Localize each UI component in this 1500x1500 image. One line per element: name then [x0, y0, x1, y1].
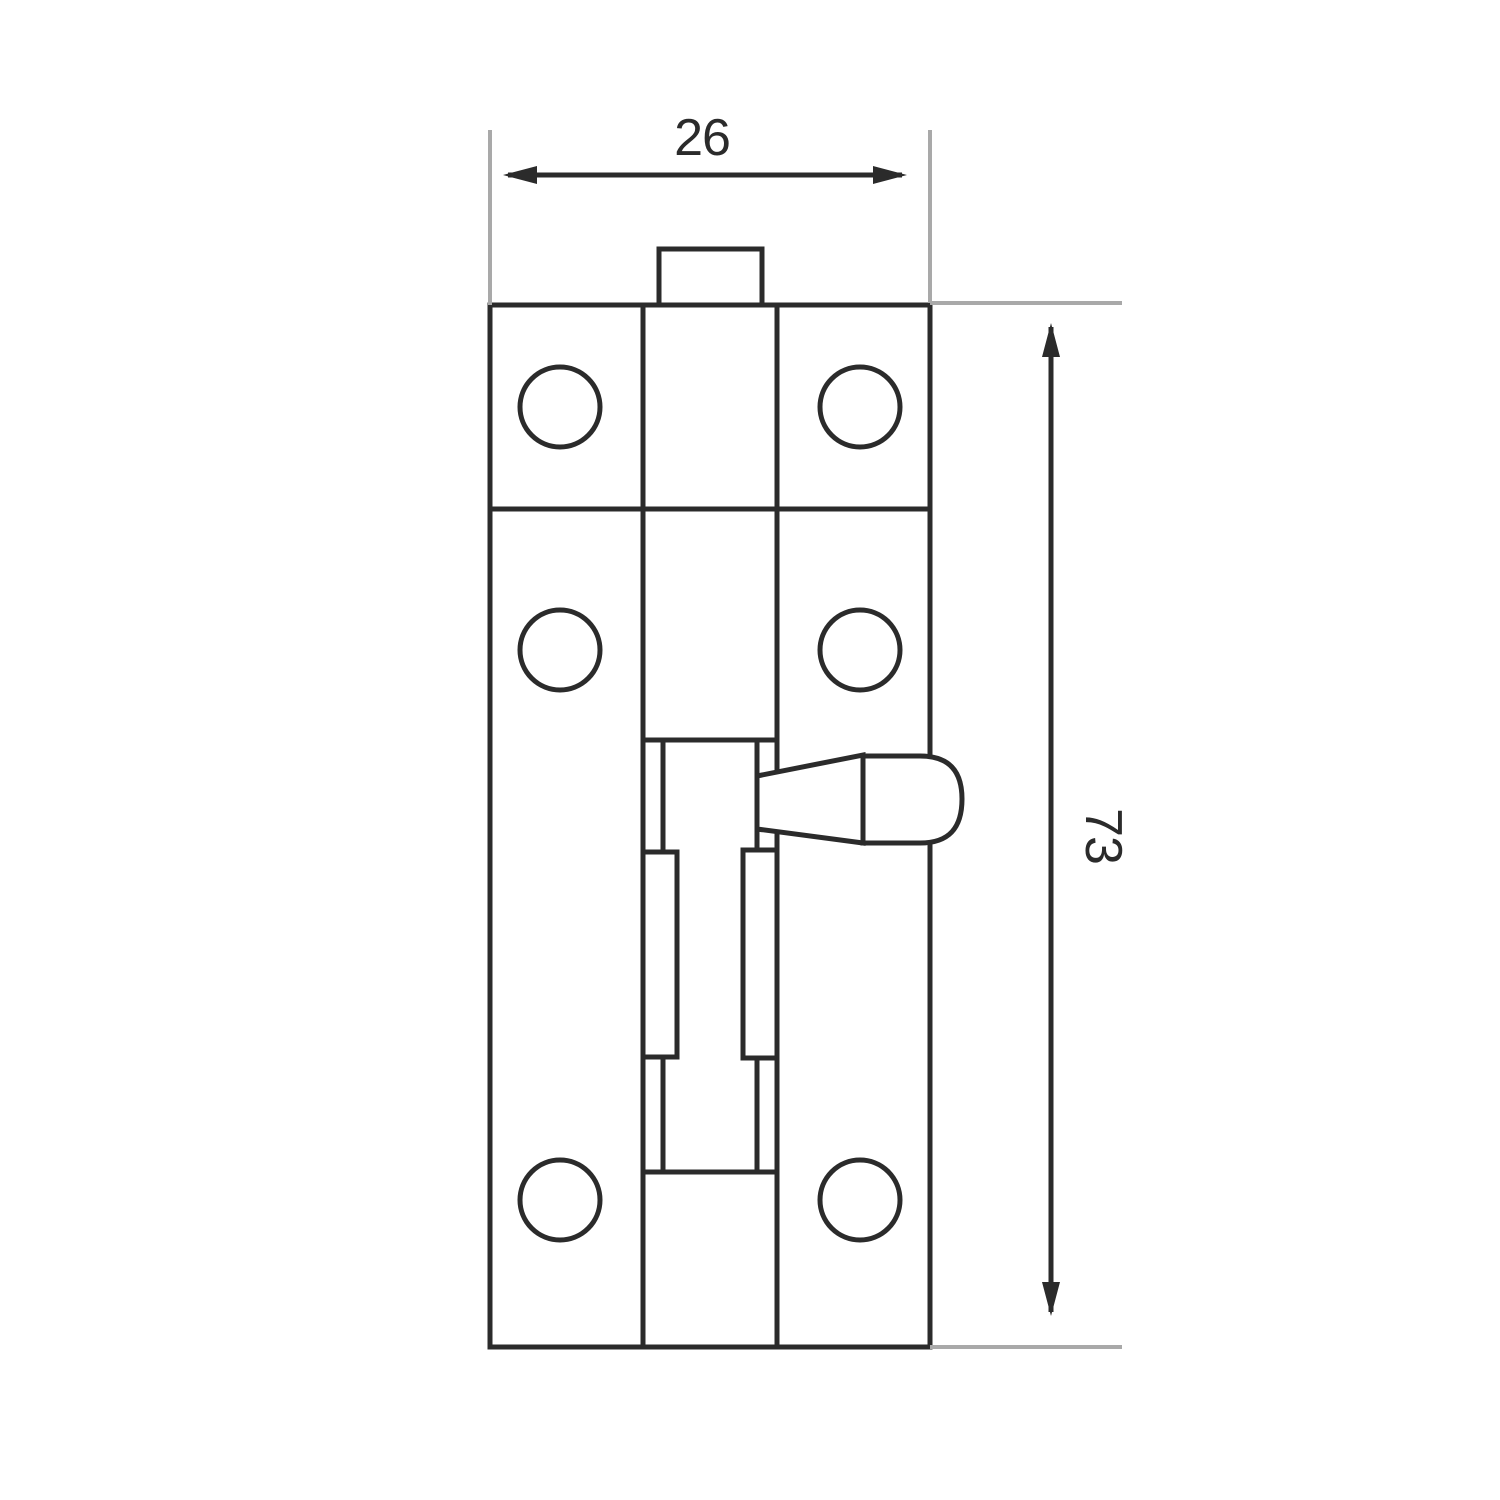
- barrel-bolt-drawing: 26 73: [0, 0, 1500, 1500]
- drawing-background: [0, 0, 1500, 1500]
- height-dimension-label: 73: [1074, 808, 1132, 864]
- knob-head: [863, 756, 962, 843]
- width-dimension-label: 26: [674, 109, 730, 167]
- drawing-canvas: 26 73: [0, 0, 1500, 1500]
